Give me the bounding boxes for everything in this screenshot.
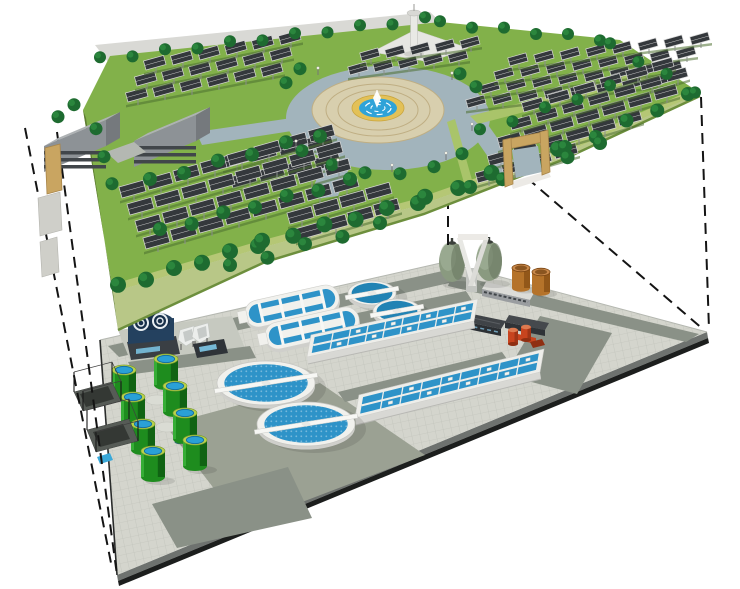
lamp-icon [445, 152, 448, 155]
lamp-icon [337, 159, 340, 162]
scene-svg [0, 0, 740, 589]
illustration-canvas [0, 0, 740, 589]
cut-section-block [38, 192, 62, 236]
lamp-icon [317, 67, 320, 70]
lamp-icon [295, 140, 298, 143]
lamp-icon [451, 72, 454, 75]
entrance-gate-pillar [45, 144, 62, 194]
cut-section-block [40, 237, 59, 277]
lamp-icon [391, 164, 394, 167]
lamp-icon [471, 123, 474, 126]
